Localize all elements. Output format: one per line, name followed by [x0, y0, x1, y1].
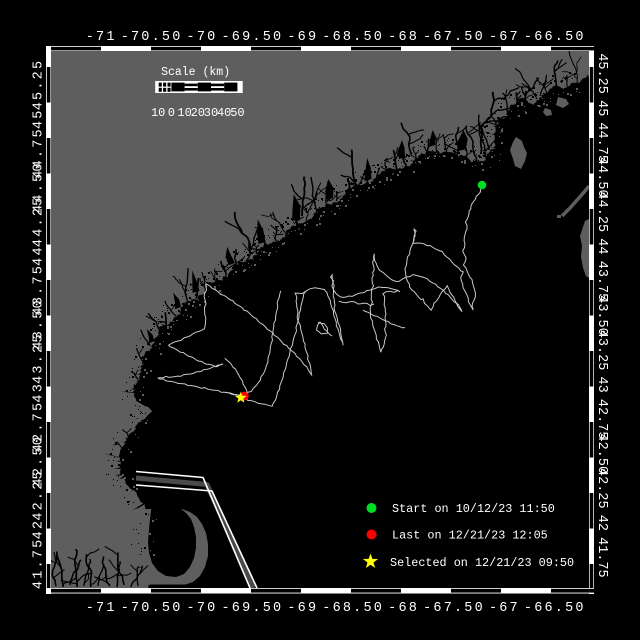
svg-text:10: 10 [151, 106, 165, 120]
svg-text:42.25: 42.25 [594, 468, 609, 509]
svg-text:-69: -69 [287, 30, 318, 45]
svg-text:43: 43 [32, 382, 47, 403]
svg-text:44: 44 [594, 238, 609, 254]
svg-text:-70: -70 [187, 30, 218, 45]
svg-text:-68.50: -68.50 [322, 601, 384, 616]
svg-text:-67: -67 [489, 30, 520, 45]
svg-text:-67.50: -67.50 [423, 30, 485, 45]
svg-text:-70.50: -70.50 [121, 601, 183, 616]
svg-text:-71: -71 [86, 601, 117, 616]
svg-text:-67.50: -67.50 [423, 601, 485, 616]
svg-text:45: 45 [32, 108, 47, 129]
svg-text:-70.50: -70.50 [121, 30, 183, 45]
svg-text:43.25: 43.25 [594, 330, 609, 371]
svg-text:45.25: 45.25 [594, 53, 609, 94]
svg-text:-68: -68 [388, 601, 419, 616]
svg-text:0: 0 [168, 106, 175, 120]
svg-text:45.25: 45.25 [32, 59, 47, 111]
svg-text:41.75: 41.75 [32, 538, 47, 590]
svg-text:Last on 12/21/23 12:05: Last on 12/21/23 12:05 [392, 529, 548, 543]
svg-text:42.25: 42.25 [32, 469, 47, 521]
svg-text:-67: -67 [489, 601, 520, 616]
svg-text:44.25: 44.25 [594, 192, 609, 233]
svg-text:42: 42 [594, 515, 609, 531]
svg-text:41.75: 41.75 [594, 537, 609, 578]
svg-text:44: 44 [32, 245, 47, 266]
svg-text:Selected on 12/21/23 09:50: Selected on 12/21/23 09:50 [390, 556, 574, 570]
svg-text:Start on 10/12/23 11:50: Start on 10/12/23 11:50 [392, 502, 555, 516]
svg-text:-68.50: -68.50 [322, 30, 384, 45]
svg-text:50: 50 [230, 106, 244, 120]
svg-text:43: 43 [594, 376, 609, 392]
svg-text:-69.50: -69.50 [221, 30, 283, 45]
svg-text:-66.50: -66.50 [524, 30, 586, 45]
svg-text:-70: -70 [187, 601, 218, 616]
svg-text:-69: -69 [287, 601, 318, 616]
svg-text:Scale (km): Scale (km) [161, 66, 230, 79]
svg-text:-68: -68 [388, 30, 419, 45]
svg-text:43.25: 43.25 [32, 332, 47, 384]
svg-text:-71: -71 [86, 30, 117, 45]
svg-text:-66.50: -66.50 [524, 601, 586, 616]
svg-text:42: 42 [32, 519, 47, 540]
svg-text:44.25: 44.25 [32, 196, 47, 248]
svg-text:45: 45 [594, 100, 609, 116]
svg-text:-69.50: -69.50 [221, 601, 283, 616]
